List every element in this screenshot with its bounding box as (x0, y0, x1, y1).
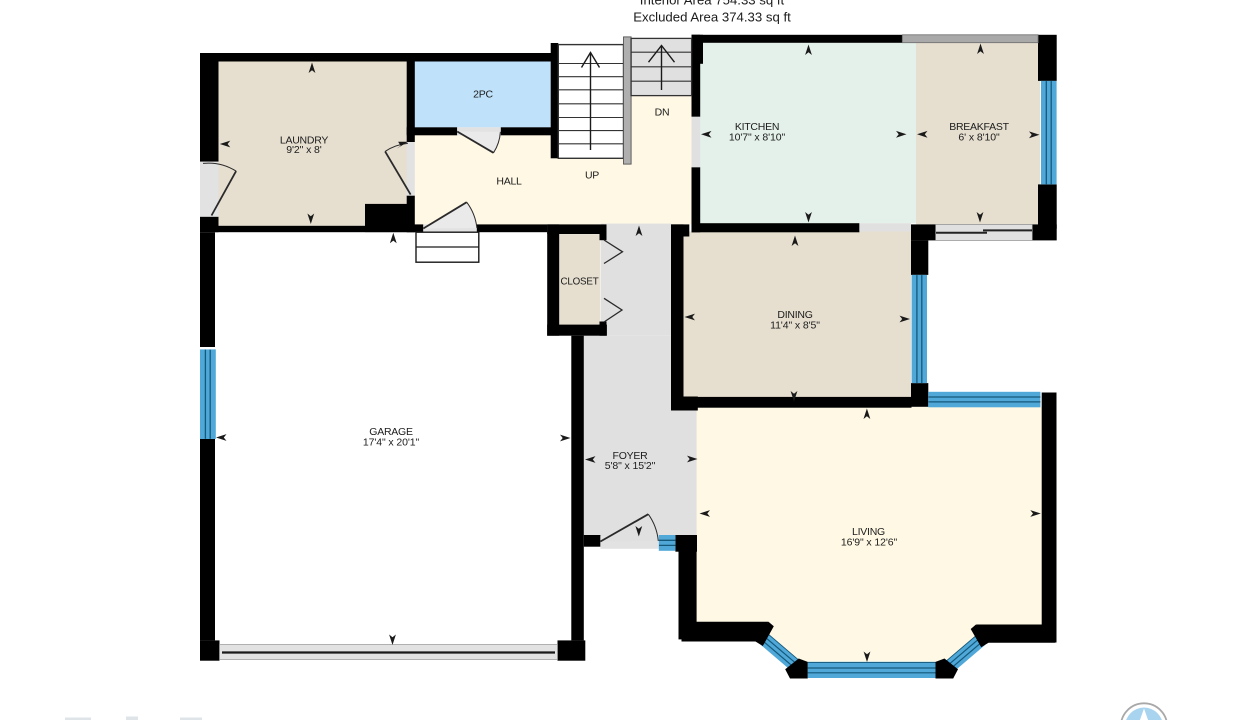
svg-text:2PC: 2PC (473, 89, 493, 101)
svg-text:CLOSET: CLOSET (561, 277, 599, 288)
svg-text:16'9" x 12'6": 16'9" x 12'6" (841, 536, 898, 548)
svg-text:5'8" x 15'2": 5'8" x 15'2" (605, 460, 656, 472)
svg-text:Interior Area 754.33 sq ft: Interior Area 754.33 sq ft (640, 0, 785, 8)
svg-text:DN: DN (655, 107, 670, 119)
svg-text:6' x 8'10": 6' x 8'10" (958, 132, 1000, 144)
svg-text:HALL: HALL (496, 176, 522, 188)
svg-text:11'4" x 8'5": 11'4" x 8'5" (770, 320, 820, 332)
svg-text:10'7" x 8'10": 10'7" x 8'10" (729, 132, 786, 144)
svg-text:9'2" x 8': 9'2" x 8' (286, 144, 322, 156)
svg-text:UP: UP (585, 170, 599, 182)
svg-text:17'4" x 20'1": 17'4" x 20'1" (363, 437, 420, 449)
svg-text:Excluded Area 374.33 sq ft: Excluded Area 374.33 sq ft (633, 10, 791, 25)
